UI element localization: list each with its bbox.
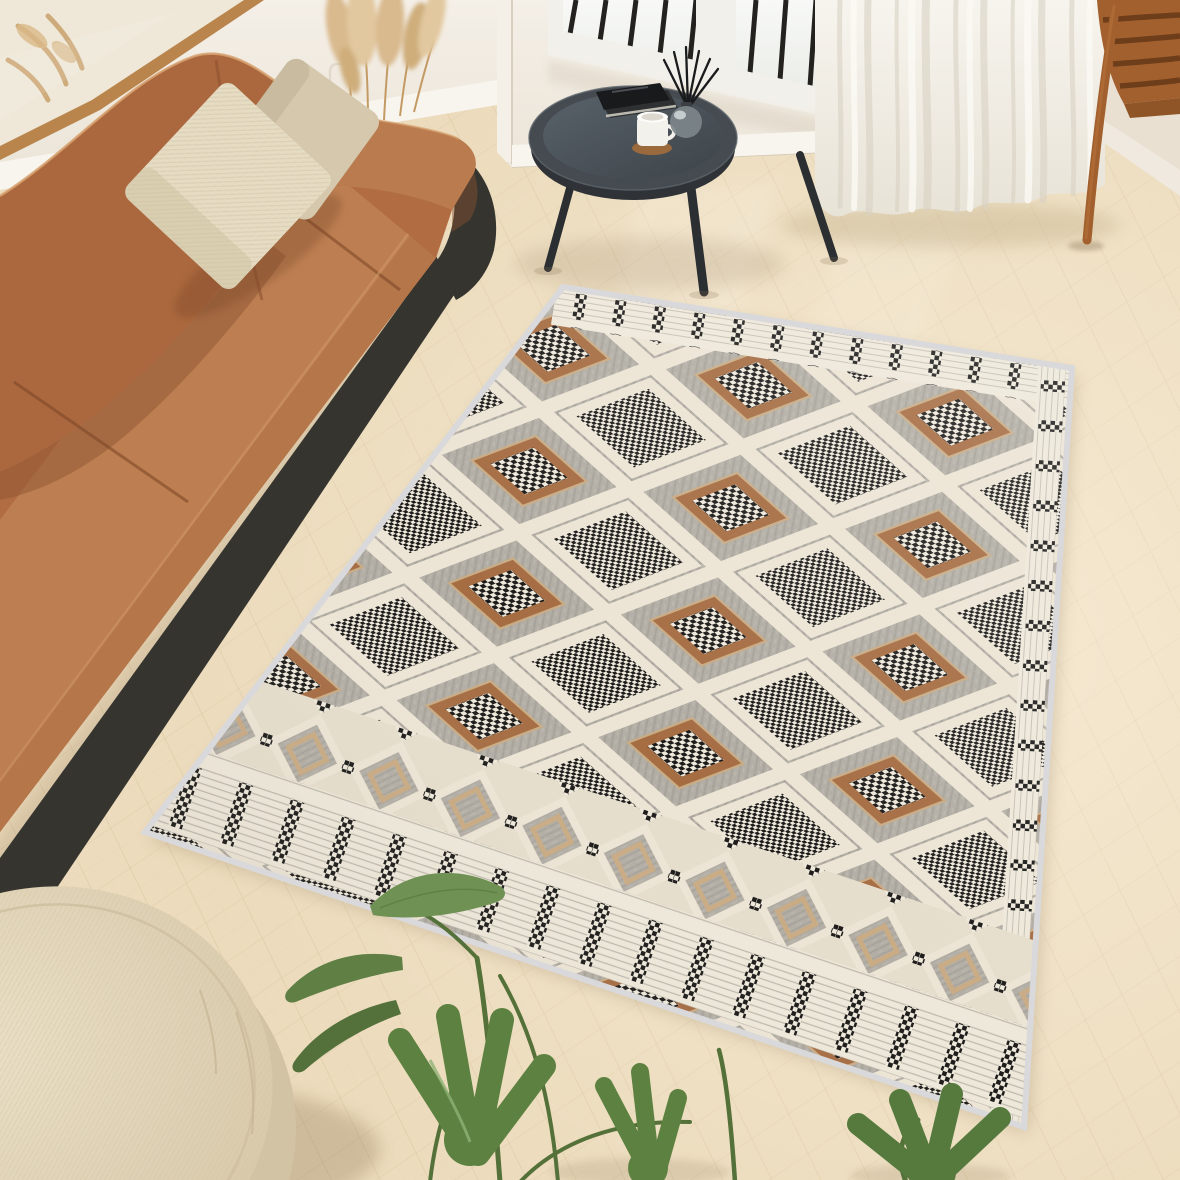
curtain-highlight [854,0,855,208]
curtain-highlight [970,0,971,209]
scene-canvas [0,0,1180,1180]
curtain-fold [1072,0,1074,194]
curtain-fold [926,0,928,207]
leg-shadow [534,267,562,275]
window-jamb [548,0,563,31]
curtain-highlight [912,0,913,209]
curtain-fold [1042,0,1044,200]
diffuser-glass-ball [670,106,702,138]
curtain-fold [868,0,870,212]
curtain-fold [897,0,898,210]
leg-shadow [689,291,719,299]
curtain-fold [1013,0,1014,202]
curtain-fold [956,0,958,212]
wall-corner-pilaster [497,0,512,162]
leaf-finger [640,1072,652,1176]
curtain-fold [984,0,986,206]
mug-interior [642,113,664,120]
living-room-photo [0,0,1180,1180]
leg-shadow [820,257,848,265]
curtain-fold [840,0,841,206]
diffuser-highlight [674,111,686,120]
curtain-highlight [1028,0,1029,200]
sheer-curtain [815,0,1105,216]
